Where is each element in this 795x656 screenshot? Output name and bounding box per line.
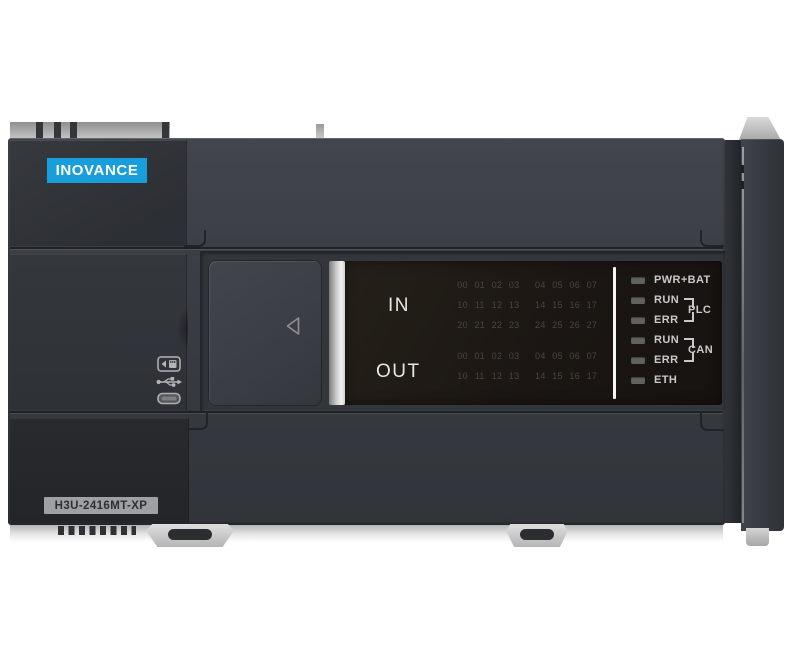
io-index: 16 xyxy=(566,300,583,310)
din-clip-notch xyxy=(520,529,554,540)
led-row-err-plc: ERR xyxy=(631,314,678,327)
in-index-row: 00 01 02 03 04 05 06 07 xyxy=(454,280,601,290)
out-index-row: 10 11 12 13 14 15 16 17 xyxy=(454,371,601,381)
io-index: 02 xyxy=(488,351,505,361)
flip-cover xyxy=(209,261,321,405)
sd-card-icon xyxy=(157,356,181,372)
latch-notch xyxy=(700,413,724,431)
port-cover-door xyxy=(10,254,186,410)
led-display-window: IN OUT 00 01 02 03 04 05 06 07 10 11 12 xyxy=(345,261,722,405)
io-index: 14 xyxy=(532,300,549,310)
model-panel: H3U-2416MT-XP xyxy=(10,418,188,523)
io-index: 00 xyxy=(454,280,471,290)
brand-logo: INOVANCE xyxy=(47,158,147,183)
mini-usb-port-icon xyxy=(157,392,181,405)
io-index: 27 xyxy=(583,320,600,330)
in-index-row: 20 21 22 23 24 25 26 27 xyxy=(454,320,601,330)
side-module-foot xyxy=(746,528,769,546)
plc-device-photo: INOVANCE xyxy=(0,0,795,656)
led-label: ERR xyxy=(654,315,678,326)
in-index-row: 10 11 12 13 14 15 16 17 xyxy=(454,300,601,310)
io-index: 12 xyxy=(488,371,505,381)
expansion-side-module xyxy=(741,139,784,531)
io-index: 24 xyxy=(532,320,549,330)
io-index: 25 xyxy=(549,320,566,330)
io-index: 23 xyxy=(506,320,523,330)
err-plc-led-indicator xyxy=(631,317,645,324)
din-rail-clip-top xyxy=(739,117,781,140)
plc-group-label: PLC xyxy=(688,304,711,316)
io-index: 20 xyxy=(454,320,471,330)
out-index-row: 00 01 02 03 04 05 06 07 xyxy=(454,351,601,361)
io-index: 21 xyxy=(471,320,488,330)
io-index: 17 xyxy=(583,371,600,381)
io-index: 16 xyxy=(566,371,583,381)
pwr-led-indicator xyxy=(631,277,645,284)
io-index: 10 xyxy=(454,371,471,381)
led-row-err-can: ERR xyxy=(631,354,678,367)
io-index: 15 xyxy=(549,371,566,381)
logo-panel: INOVANCE xyxy=(10,140,186,246)
usb-icon xyxy=(156,376,182,388)
run-plc-led-indicator xyxy=(631,297,645,304)
display-recess: IN OUT 00 01 02 03 04 05 06 07 10 11 12 xyxy=(200,251,725,411)
latch-notch xyxy=(700,230,724,247)
led-label: PWR+BAT xyxy=(654,275,711,286)
io-index: 07 xyxy=(583,280,600,290)
err-can-led-indicator xyxy=(631,357,645,364)
io-index: 00 xyxy=(454,351,471,361)
open-arrow-icon xyxy=(285,316,301,336)
io-index: 22 xyxy=(488,320,505,330)
io-index: 02 xyxy=(488,280,505,290)
port-icon-group xyxy=(156,356,182,405)
in-section-label: IN xyxy=(388,295,410,317)
led-row-eth: ETH xyxy=(631,374,677,387)
io-index: 26 xyxy=(566,320,583,330)
led-row-run-plc: RUN xyxy=(631,294,679,307)
model-label: H3U-2416MT-XP xyxy=(44,497,158,514)
led-row-pwr: PWR+BAT xyxy=(631,274,711,287)
led-label: ETH xyxy=(654,375,677,386)
led-label: ERR xyxy=(654,355,678,366)
latch-notch xyxy=(184,230,206,247)
led-label: RUN xyxy=(654,335,679,346)
side-vent-mark xyxy=(741,165,744,173)
led-label: RUN xyxy=(654,295,679,306)
plc-body: INOVANCE xyxy=(8,138,725,525)
led-row-run-can: RUN xyxy=(631,334,679,347)
latch-notch xyxy=(186,413,208,430)
body-side-shadow xyxy=(725,140,741,523)
io-index: 03 xyxy=(506,280,523,290)
io-index: 11 xyxy=(471,371,488,381)
finger-notch xyxy=(172,300,188,358)
io-index: 12 xyxy=(488,300,505,310)
din-clip-notch xyxy=(168,529,212,540)
io-index: 17 xyxy=(583,300,600,310)
io-index: 06 xyxy=(566,280,583,290)
io-index: 11 xyxy=(471,300,488,310)
io-index: 13 xyxy=(506,371,523,381)
io-index: 01 xyxy=(471,280,488,290)
side-highlight-line xyxy=(742,147,744,523)
io-index: 04 xyxy=(532,280,549,290)
io-index: 05 xyxy=(549,351,566,361)
io-index: 15 xyxy=(549,300,566,310)
io-index: 14 xyxy=(532,371,549,381)
body-seam-highlight xyxy=(10,413,723,414)
out-section-label: OUT xyxy=(376,361,421,383)
run-can-led-indicator xyxy=(631,337,645,344)
io-index: 04 xyxy=(532,351,549,361)
cover-hinge-bar xyxy=(329,261,345,405)
io-index: 01 xyxy=(471,351,488,361)
io-index: 05 xyxy=(549,280,566,290)
panel-divider-line xyxy=(613,267,616,399)
can-group-label: CAN xyxy=(688,344,713,356)
io-index: 10 xyxy=(454,300,471,310)
side-vent-mark xyxy=(741,181,744,189)
io-index: 13 xyxy=(506,300,523,310)
io-index: 07 xyxy=(583,351,600,361)
eth-led-indicator xyxy=(631,377,645,384)
body-seam-highlight xyxy=(10,249,723,250)
bottom-terminal-dividers xyxy=(58,526,136,535)
io-index: 06 xyxy=(566,351,583,361)
io-index: 03 xyxy=(506,351,523,361)
